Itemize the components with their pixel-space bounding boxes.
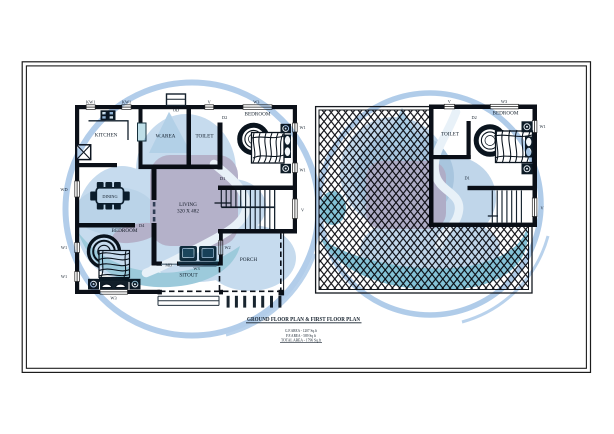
- svg-text:KW1: KW1: [86, 99, 95, 104]
- svg-text:W1: W1: [540, 124, 546, 129]
- svg-text:W1: W1: [300, 125, 306, 130]
- svg-text:W1: W1: [300, 168, 306, 173]
- svg-text:W1: W1: [61, 274, 67, 279]
- svg-text:OD: OD: [173, 108, 179, 113]
- svg-text:KITCHEN: KITCHEN: [95, 132, 118, 138]
- svg-text:W3: W3: [110, 295, 116, 300]
- svg-text:W1: W1: [61, 245, 67, 250]
- svg-text:BEDROOM: BEDROOM: [245, 112, 271, 118]
- svg-text:GROUND FLOOR PLAN & FIRST FLOO: GROUND FLOOR PLAN & FIRST FLOOR PLAN: [247, 316, 360, 323]
- svg-text:D2: D2: [222, 115, 227, 120]
- svg-text:W3: W3: [501, 99, 507, 104]
- svg-text:D2: D2: [472, 115, 477, 120]
- svg-text:TOTAL AREA - 1796 Sq.ft: TOTAL AREA - 1796 Sq.ft: [281, 337, 322, 342]
